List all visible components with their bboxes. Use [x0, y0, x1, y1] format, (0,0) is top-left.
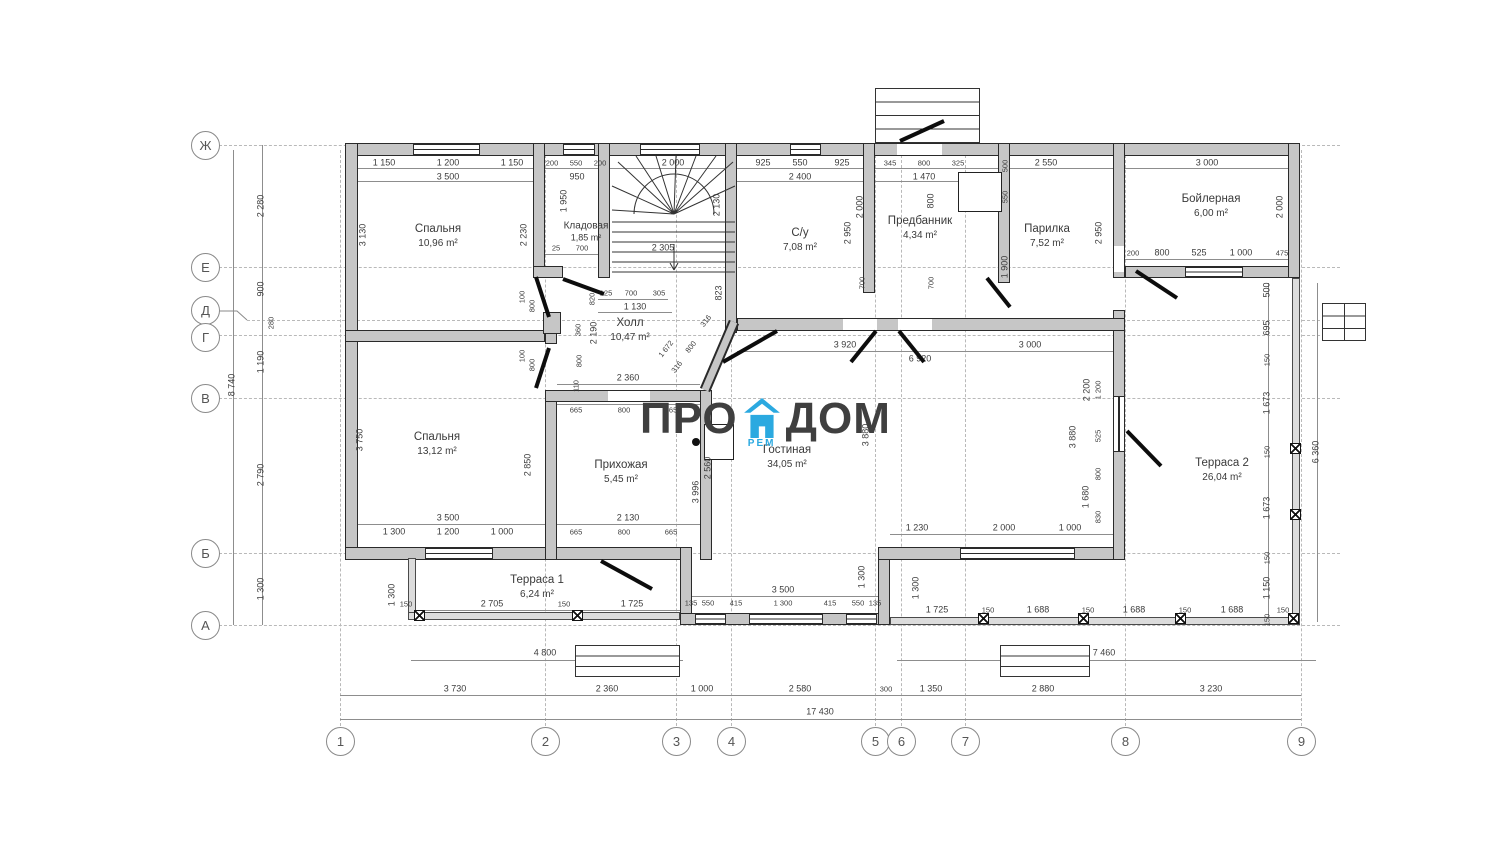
house-icon: [744, 398, 780, 438]
door-leaves: [536, 121, 1177, 589]
axis-leader: [219, 311, 247, 320]
watermark-text-rem: РЕМ: [744, 438, 780, 449]
floor-plan: ПРО РЕМ ДОМ Спальня10,96 m² Кладовая1,85…: [0, 0, 1500, 844]
staircase: [612, 156, 735, 272]
watermark-text-pro: ПРО: [640, 398, 738, 440]
watermark-logo: ПРО РЕМ ДОМ: [640, 398, 891, 450]
watermark-text-dom: ДОМ: [786, 398, 891, 440]
